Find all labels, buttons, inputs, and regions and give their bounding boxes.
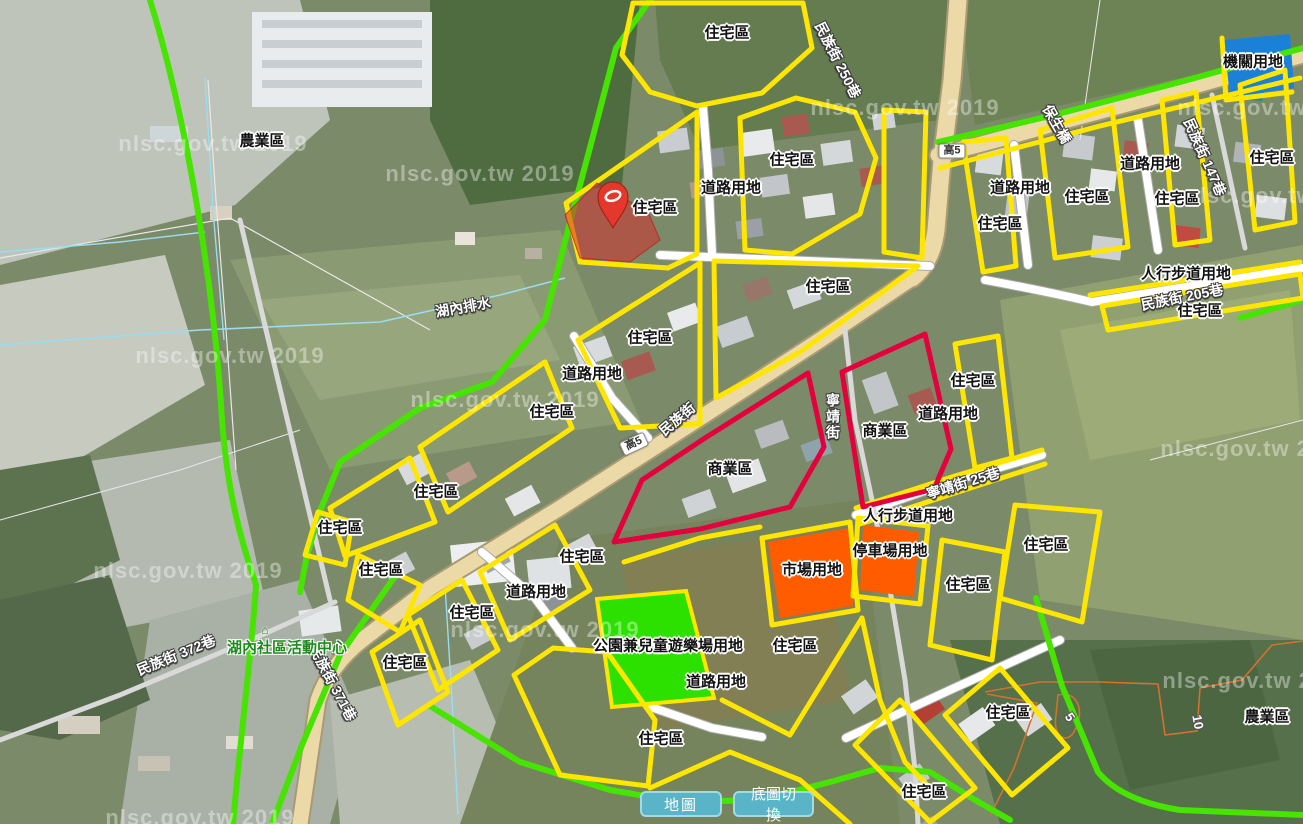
map-button[interactable]: 地圖 [640,791,722,817]
map-graphics [0,0,1303,824]
parking-zone-fill [860,525,919,597]
community-center-icon: ⌂ [261,623,268,637]
market-zone-fill [768,528,853,618]
basemap-switch-button[interactable]: 底圖切換 [733,791,814,817]
map-canvas[interactable]: nlsc.gov.tw 2019nlsc.gov.tw 2019nlsc.gov… [0,0,1303,824]
